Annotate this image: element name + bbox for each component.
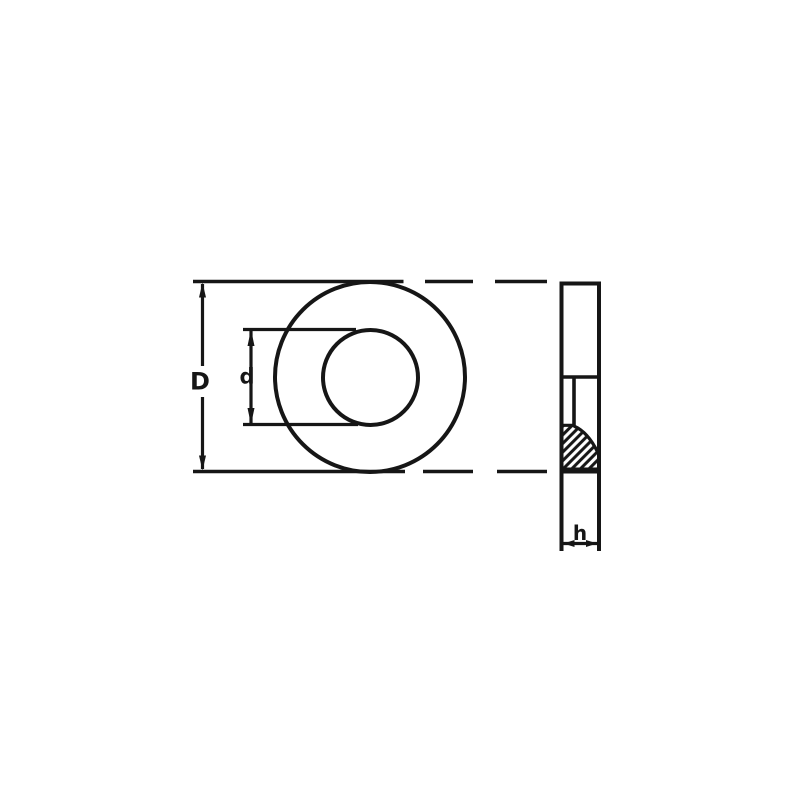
dim-d-arrow-down <box>248 408 255 425</box>
drawing-canvas: D d <box>0 0 800 800</box>
outer-diameter-label: D <box>190 368 210 396</box>
outer-circle <box>275 282 465 472</box>
washer-technical-drawing: D d <box>0 0 800 800</box>
section-hatch-area <box>560 425 598 468</box>
side-view-section <box>560 282 602 551</box>
dimension-inner-diameter: d <box>239 330 358 425</box>
dimension-outer-diameter: D <box>190 283 210 471</box>
thickness-label: h <box>573 521 587 545</box>
side-view-bottom-edge <box>560 468 602 474</box>
dim-D-arrow-up <box>199 283 206 298</box>
dim-d-arrow-up <box>248 330 255 347</box>
inner-circle <box>323 330 418 425</box>
inner-diameter-label: d <box>239 365 254 389</box>
dimension-thickness: h <box>564 521 598 547</box>
dim-D-arrow-down <box>199 456 206 471</box>
dim-h-arrow-right <box>586 540 597 547</box>
